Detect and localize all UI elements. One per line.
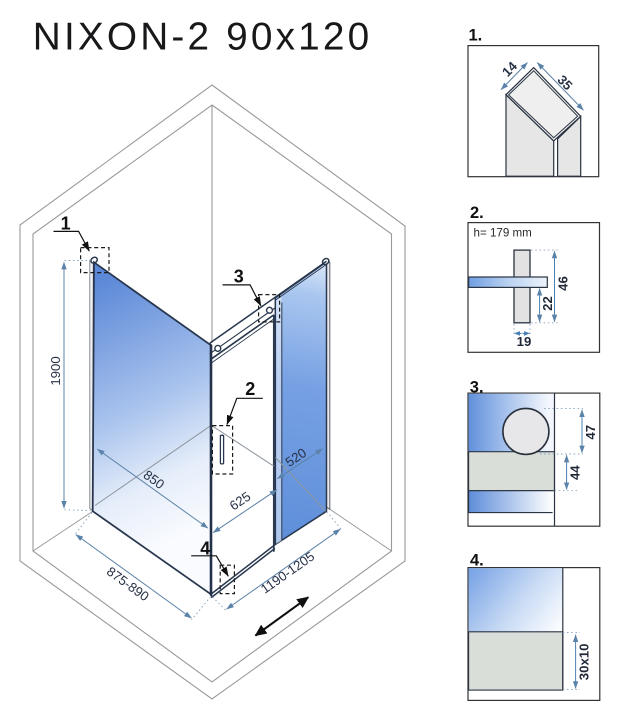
- svg-text:35: 35: [554, 72, 575, 93]
- svg-text:625: 625: [227, 489, 254, 514]
- svg-text:1190-1205: 1190-1205: [258, 549, 317, 597]
- svg-text:30x10: 30x10: [577, 644, 592, 681]
- svg-text:2.: 2.: [470, 204, 484, 222]
- svg-text:1: 1: [61, 214, 71, 234]
- svg-text:14: 14: [499, 58, 520, 79]
- svg-text:1900: 1900: [48, 356, 63, 385]
- svg-text:2: 2: [245, 379, 255, 399]
- svg-text:h= 179 mm: h= 179 mm: [474, 226, 532, 239]
- svg-text:NIXON-2 90x120: NIXON-2 90x120: [33, 16, 373, 59]
- svg-text:46: 46: [556, 276, 571, 291]
- svg-text:47: 47: [583, 425, 598, 440]
- svg-text:19: 19: [517, 334, 532, 349]
- svg-text:44: 44: [568, 465, 583, 480]
- svg-text:4.: 4.: [470, 551, 484, 569]
- svg-text:3.: 3.: [470, 378, 484, 396]
- svg-text:3: 3: [234, 267, 244, 287]
- svg-text:1.: 1.: [469, 27, 483, 45]
- svg-text:22: 22: [540, 296, 555, 311]
